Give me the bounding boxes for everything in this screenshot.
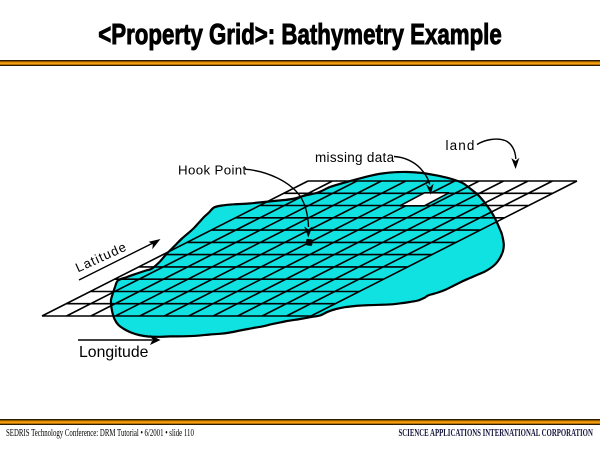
svg-text:land: land — [446, 138, 476, 153]
svg-text:Latitude: Latitude — [73, 239, 129, 275]
svg-text:Longitude: Longitude — [79, 344, 149, 361]
svg-text:Hook Point: Hook Point — [178, 163, 247, 178]
svg-text:missing data: missing data — [315, 150, 395, 165]
